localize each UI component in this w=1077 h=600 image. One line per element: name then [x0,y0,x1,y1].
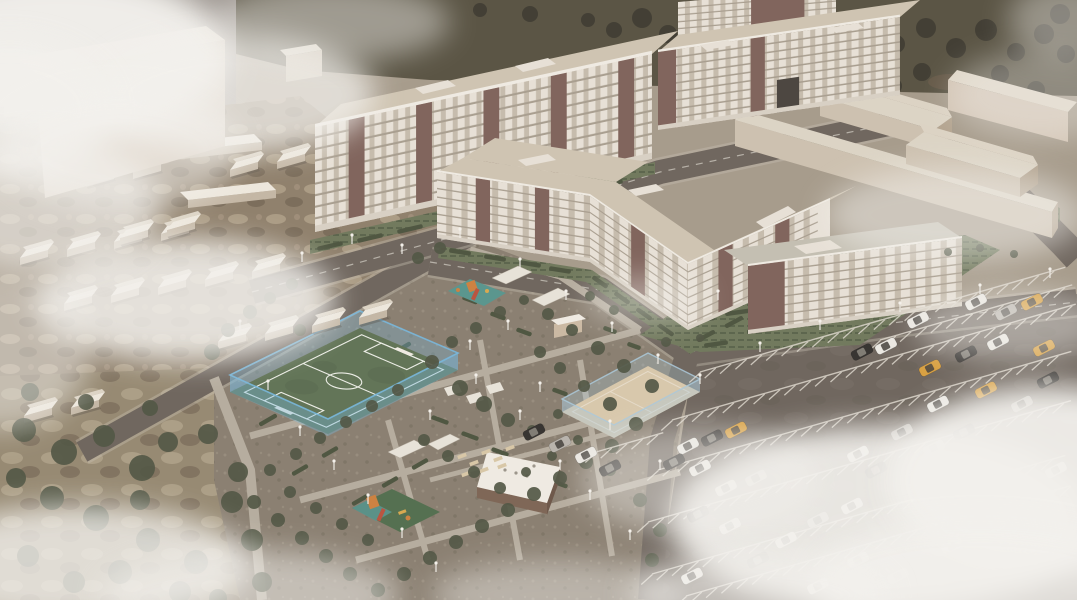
fog-cloud [585,276,705,324]
fog-cloud [0,90,240,210]
scene-canvas [0,0,1077,600]
fog-cloud [580,425,820,535]
aerial-render-scene [0,0,1077,600]
fog-cloud [825,167,1077,263]
